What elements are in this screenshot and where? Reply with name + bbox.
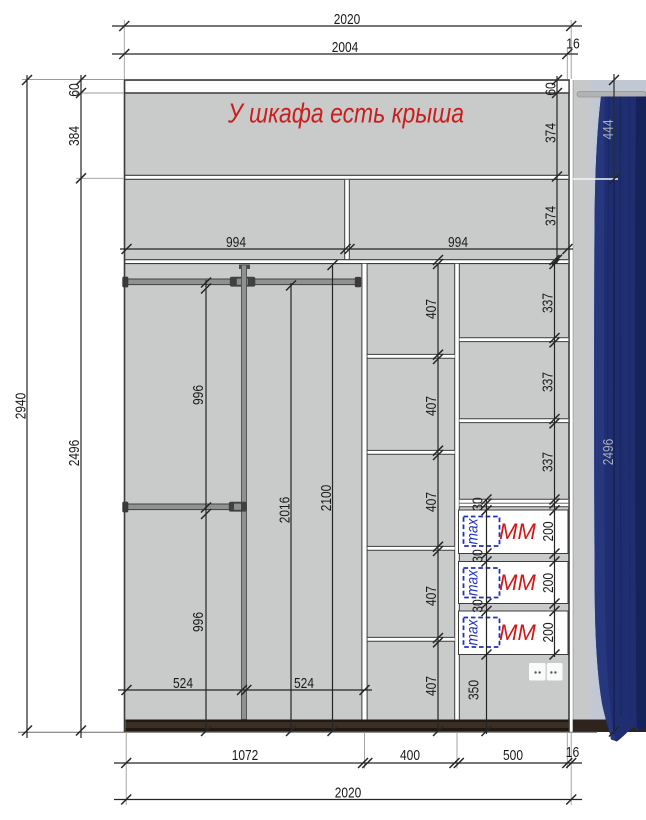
svg-text:MM: MM	[499, 570, 536, 595]
svg-text:350: 350	[466, 680, 483, 700]
svg-text:1072: 1072	[232, 747, 259, 764]
svg-text:MM: MM	[499, 519, 536, 544]
svg-text:2940: 2940	[13, 393, 30, 420]
svg-text:524: 524	[173, 675, 193, 692]
svg-text:30: 30	[470, 549, 487, 563]
svg-text:60: 60	[543, 82, 560, 96]
svg-text:500: 500	[503, 747, 523, 764]
svg-text:337: 337	[540, 372, 557, 392]
svg-text:2004: 2004	[332, 39, 359, 56]
svg-text:407: 407	[423, 586, 440, 606]
svg-text:60: 60	[66, 83, 83, 97]
svg-text:16: 16	[566, 36, 580, 53]
svg-text:994: 994	[226, 234, 246, 251]
svg-text:337: 337	[540, 452, 557, 472]
svg-text:2020: 2020	[335, 785, 362, 802]
svg-text:407: 407	[423, 676, 440, 696]
svg-text:2020: 2020	[334, 11, 361, 28]
svg-text:444: 444	[600, 120, 617, 140]
svg-text:2496: 2496	[66, 440, 83, 467]
svg-text:407: 407	[423, 396, 440, 416]
svg-text:30: 30	[470, 497, 487, 511]
svg-text:996: 996	[190, 612, 207, 632]
svg-text:407: 407	[423, 492, 440, 512]
svg-text:max: max	[465, 518, 482, 545]
svg-text:996: 996	[190, 385, 207, 405]
svg-text:2100: 2100	[318, 485, 335, 512]
svg-text:374: 374	[543, 206, 560, 226]
svg-text:337: 337	[540, 293, 557, 313]
svg-text:524: 524	[294, 675, 314, 692]
svg-text:2496: 2496	[600, 439, 617, 466]
svg-text:2016: 2016	[277, 497, 294, 524]
svg-text:384: 384	[66, 126, 83, 146]
svg-text:374: 374	[543, 123, 560, 143]
svg-text:400: 400	[400, 747, 420, 764]
svg-text:30: 30	[470, 599, 487, 613]
svg-text:max: max	[465, 569, 482, 596]
svg-text:max: max	[465, 619, 482, 646]
svg-text:У шкафа есть крыша: У шкафа есть крыша	[227, 98, 464, 129]
svg-text:MM: MM	[499, 620, 536, 645]
svg-text:994: 994	[448, 234, 468, 251]
svg-text:16: 16	[566, 744, 580, 761]
svg-text:407: 407	[423, 299, 440, 319]
